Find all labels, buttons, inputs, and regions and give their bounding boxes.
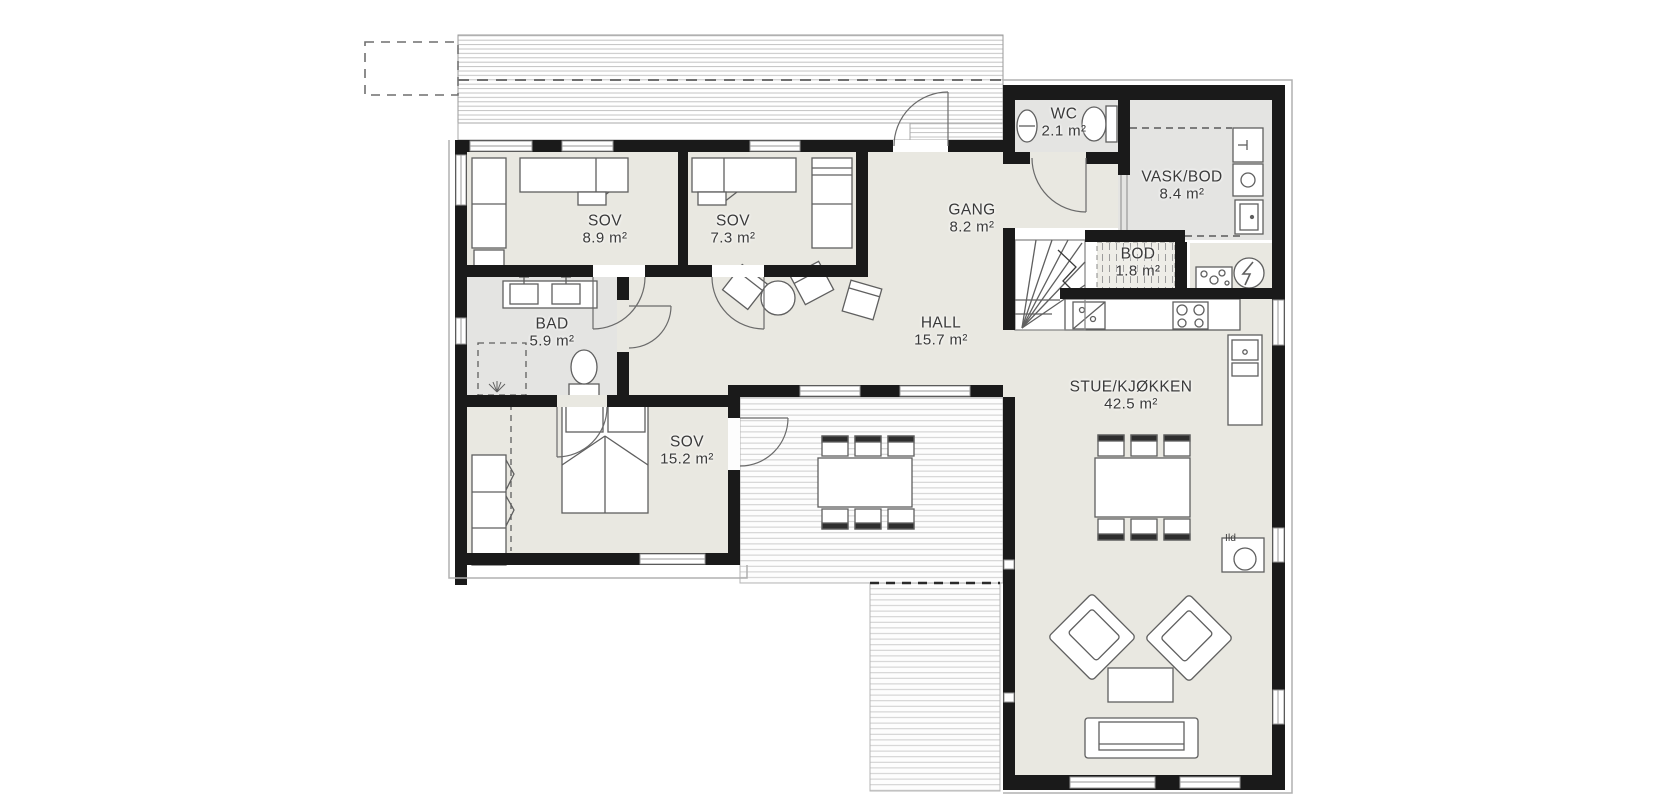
- room-name: HALL: [914, 316, 968, 333]
- room-area: 5.9 m²: [530, 333, 575, 349]
- room-label-sov3: SOV 15.2 m²: [660, 435, 714, 468]
- room-label-hall: HALL 15.7 m²: [914, 316, 968, 349]
- room-area: 7.3 m²: [711, 230, 756, 246]
- kitchen-sink-icon: [1232, 340, 1258, 376]
- terrace-dining-set: [818, 436, 914, 529]
- room-label-vaskbod: VASK/BOD 8.4 m²: [1141, 170, 1222, 203]
- sofa: [1085, 718, 1198, 758]
- room-area: 1.8 m²: [1116, 263, 1161, 279]
- room-name: SOV: [660, 435, 714, 452]
- room-name: BAD: [530, 317, 575, 334]
- room-label-gang: GANG 8.2 m²: [948, 203, 995, 236]
- room-area: 2.1 m²: [1042, 123, 1087, 139]
- room-name: SOV: [711, 214, 756, 231]
- room-label-sov1: SOV 8.9 m²: [583, 214, 628, 247]
- room-area: 8.4 m²: [1141, 186, 1222, 202]
- stove-icon: [1173, 302, 1208, 329]
- room-name: BOD: [1116, 247, 1161, 264]
- entrance-porch: [458, 35, 1003, 140]
- room-label-sov2: SOV 7.3 m²: [711, 214, 756, 247]
- room-area: 15.2 m²: [660, 451, 714, 467]
- floor-plan: SOV 8.9 m² SOV 7.3 m² GANG 8.2 m² WC 2.1…: [0, 0, 1670, 800]
- room-area: 42.5 m²: [1070, 396, 1193, 412]
- dishwasher-icon: [1073, 302, 1105, 329]
- room-label-bad: BAD 5.9 m²: [530, 317, 575, 350]
- floor-plan-drawing: [0, 0, 1670, 800]
- fireplace-label: Ild: [1225, 533, 1236, 544]
- room-name: VASK/BOD: [1141, 170, 1222, 187]
- electrical-panel-icon: [1234, 258, 1264, 288]
- room-area: 8.2 m²: [948, 219, 995, 235]
- room-name: STUE/KJØKKEN: [1070, 380, 1193, 397]
- room-area: 15.7 m²: [914, 332, 968, 348]
- roof-overhang-dashed-outline: [365, 42, 458, 95]
- room-label-stue: STUE/KJØKKEN 42.5 m²: [1070, 380, 1193, 413]
- room-label-wc: WC 2.1 m²: [1042, 107, 1087, 140]
- room-name: SOV: [583, 214, 628, 231]
- room-area: 8.9 m²: [583, 230, 628, 246]
- room-name: GANG: [948, 203, 995, 220]
- room-name: WC: [1042, 107, 1087, 124]
- room-label-bod: BOD 1.8 m²: [1116, 247, 1161, 280]
